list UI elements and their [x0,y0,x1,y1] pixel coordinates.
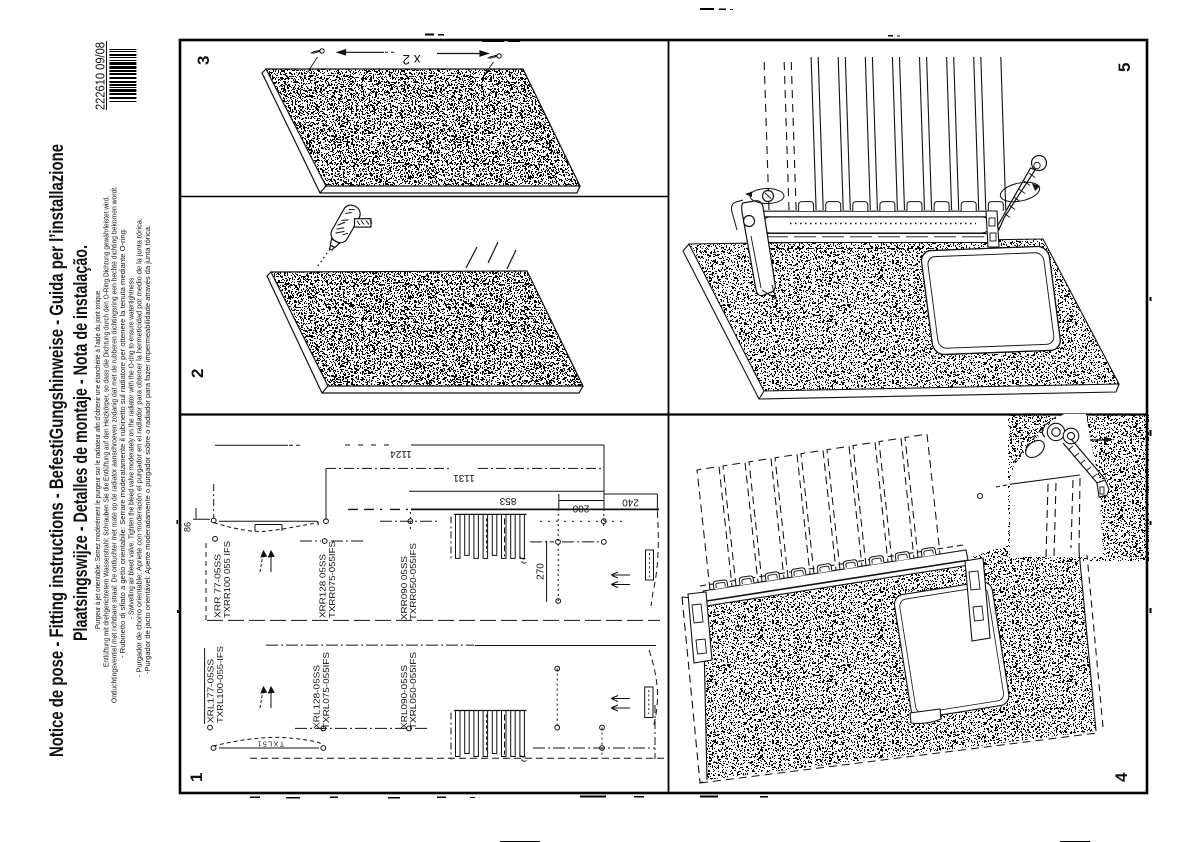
svg-text:200: 200 [572,503,589,514]
svg-text:5: 5 [1115,63,1134,72]
svg-text:2: 2 [188,369,207,378]
svg-text:86: 86 [183,522,193,532]
svg-text:3: 3 [194,56,213,65]
svg-text:TXL51: TXL51 [256,740,284,747]
svg-text:Plaatsingswijze - Detalles de: Plaatsingswijze - Detalles de montaje - … [71,245,92,641]
svg-text:1124: 1124 [390,448,412,459]
svg-text:TXRR075-055IFS: TXRR075-055IFS [327,541,337,618]
svg-text:853: 853 [499,495,516,506]
svg-text:TXRR100 055 IFS: TXRR100 055 IFS [222,541,232,618]
svg-text:270: 270 [536,563,547,580]
svg-text:Notice de pose - Fitting instr: Notice de pose - Fitting instructions - … [47,144,68,757]
svg-text:1131: 1131 [453,472,475,483]
svg-text:TXRL050-055IFS: TXRL050-055IFS [408,652,418,729]
svg-text:-Purgador de jacto orientável:: -Purgador de jacto orientável: Aperte mo… [143,225,152,674]
svg-text:4: 4 [1112,772,1131,782]
svg-text:TXRR050-055IFS: TXRR050-055IFS [408,543,418,620]
svg-text:TXRL075-055IFS: TXRL075-055IFS [321,652,331,729]
svg-text:222610 09/08: 222610 09/08 [93,42,108,110]
svg-text:TXRL100-055-IFS: TXRL100-055-IFS [215,646,225,723]
svg-text:x 2: x 2 [402,52,420,67]
svg-text:1: 1 [187,773,206,782]
svg-text:240: 240 [622,497,639,508]
